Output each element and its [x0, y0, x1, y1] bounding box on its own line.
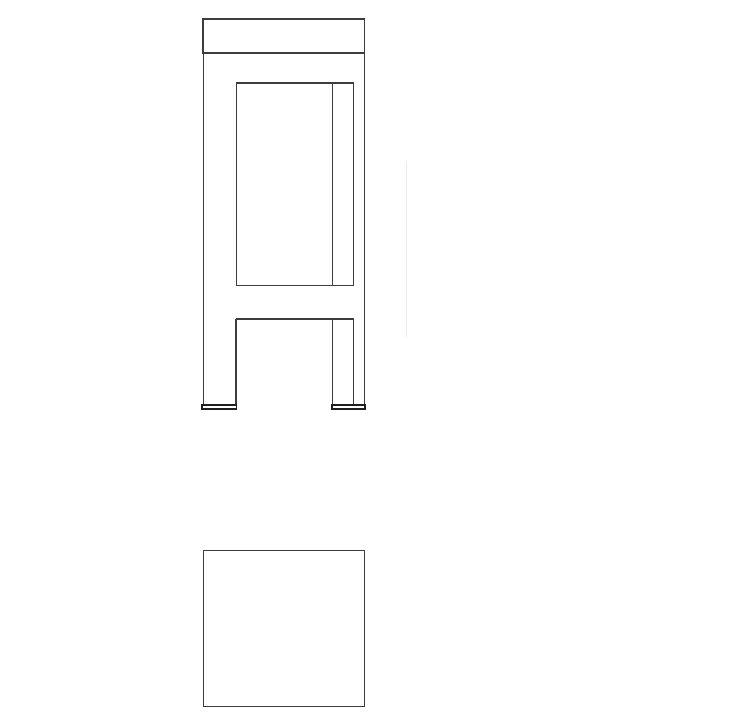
side-panel	[236, 83, 353, 286]
seat-plan-outline	[204, 551, 365, 707]
chair-plan-view	[204, 551, 365, 707]
chair-side-elevation	[202, 19, 406, 409]
rear-foot-glide	[332, 405, 365, 409]
front-foot-glide	[202, 405, 236, 409]
line-drawing-svg	[0, 0, 731, 728]
drawing-canvas	[0, 0, 731, 728]
backrest-top-rail	[203, 19, 365, 53]
